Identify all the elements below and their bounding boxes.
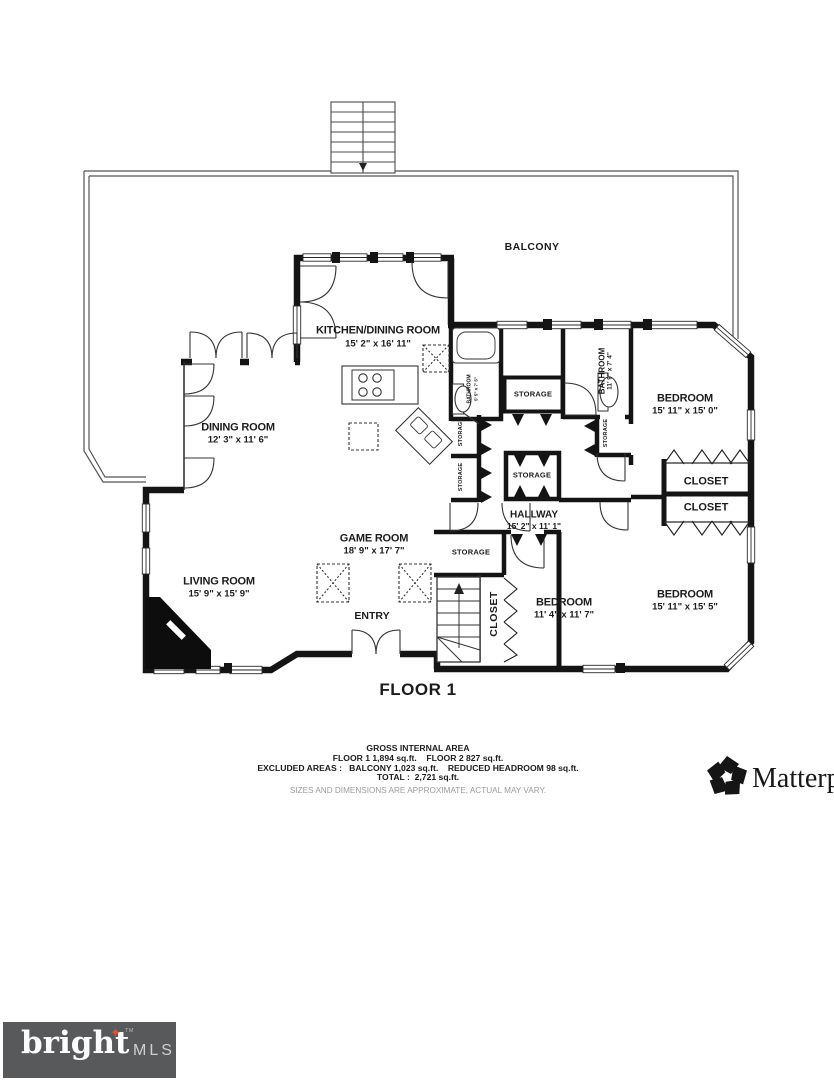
bedroom-bottom-label: BEDROOM [657, 589, 713, 602]
hallway-label: HALLWAY [510, 509, 558, 521]
hallway-dims: 15' 2" x 11' 1" [507, 522, 561, 532]
balcony-label: BALCONY [505, 241, 560, 253]
dashed-appliance [349, 423, 378, 450]
skylight-box-right [399, 564, 431, 602]
closet-bedroom-middle-label: CLOSET [488, 591, 500, 637]
floor-plan-page: BALCONY KITCHEN/DINING ROOM 15' 2" x 16'… [0, 0, 834, 1080]
matterport-logo-icon [704, 756, 750, 801]
floor-plan-drawing [0, 0, 834, 1080]
dashed-box-kitchen [423, 345, 449, 372]
star-icon: ✦ [110, 1025, 121, 1041]
trademark-symbol: TM [125, 1028, 134, 1034]
bathroom-large-label: BATHROOM 11' 9" x 7' 4" [598, 348, 615, 395]
closet-lower-label: CLOSET [684, 502, 729, 515]
storage-niche-right-label: STORAGE [603, 419, 609, 448]
living-dims: 15' 9" x 15' 9" [188, 590, 249, 601]
skylight-box-left [317, 564, 349, 602]
storage-center-label: STORAGE [513, 472, 551, 481]
bedroom-top-dims: 15' 11" x 15' 0" [652, 407, 718, 418]
area-summary: GROSS INTERNAL AREA FLOOR 1 1,894 sq.ft.… [257, 744, 578, 796]
area-summary-line3: TOTAL : 2,721 sq.ft. [257, 773, 578, 783]
stove [352, 370, 394, 400]
dining-label: DINING ROOM [201, 422, 275, 435]
bedroom-top-label: BEDROOM [657, 393, 713, 406]
bedroom-middle-dims: 11' 4" x 11' 7" [534, 611, 594, 622]
entry-label: ENTRY [354, 610, 389, 622]
kitchen-dims: 15' 2" x 16' 11" [345, 340, 411, 351]
floor-title: FLOOR 1 [379, 680, 456, 700]
bright-mls-logo: bright ✦ TM MLS [3, 1022, 176, 1078]
storage-top-label: STORAGE [514, 391, 552, 400]
game-room-label: GAME ROOM [340, 533, 408, 546]
fixtures [317, 328, 618, 602]
interior-stairs [437, 577, 480, 662]
game-room-dims: 18' 9" x 17' 7" [343, 547, 404, 558]
bedroom-middle-label: BEDROOM [536, 597, 592, 610]
area-summary-disclaimer: SIZES AND DIMENSIONS ARE APPROXIMATE, AC… [257, 786, 578, 795]
kitchen-label: KITCHEN/DINING ROOM [316, 325, 440, 338]
kitchen-sink [396, 408, 453, 465]
storage-niche-left-2-label: STORAGE [458, 463, 464, 492]
dining-dims: 12' 3" x 11' 6" [208, 436, 269, 447]
fireplace [145, 597, 211, 669]
storage-bottom-left-label: STORAGE [452, 549, 490, 558]
storage-niche-left-1-label: STORAGE [458, 418, 464, 447]
living-label: LIVING ROOM [183, 576, 255, 589]
closet-upper-label: CLOSET [684, 476, 729, 489]
bathroom-small-label: BATHROOM 5' 5" x 7' 5" [468, 374, 479, 403]
bedroom-bottom-dims: 15' 11" x 15' 5" [652, 603, 718, 614]
matterport-logo-text: Matterport [752, 763, 834, 795]
mls-suffix: MLS [133, 1042, 175, 1060]
exterior-stairs [331, 102, 395, 173]
